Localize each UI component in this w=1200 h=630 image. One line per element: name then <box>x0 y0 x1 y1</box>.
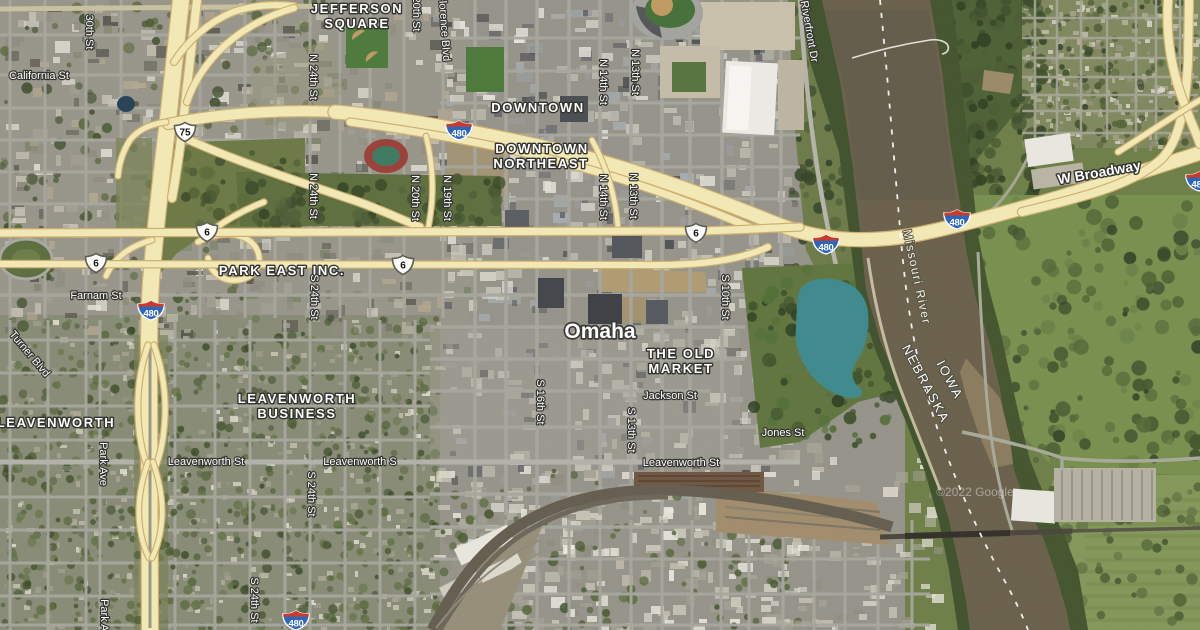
svg-text:Leavenworth St: Leavenworth St <box>643 457 719 469</box>
svg-text:N 14th St: N 14th St <box>597 59 609 105</box>
svg-text:N 24th St: N 24th St <box>307 173 319 219</box>
svg-text:Park Ave: Park Ave <box>98 599 110 630</box>
svg-text:480: 480 <box>950 218 965 229</box>
svg-text:Jackson St: Jackson St <box>643 390 697 402</box>
svg-text:480: 480 <box>289 619 304 630</box>
svg-text:S 13th St: S 13th St <box>625 407 637 452</box>
svg-text:S 24th St: S 24th St <box>248 577 260 622</box>
svg-text:LEAVENWORTH: LEAVENWORTH <box>238 391 356 406</box>
svg-text:N 14th St: N 14th St <box>597 174 609 220</box>
svg-text:DOWNTOWN: DOWNTOWN <box>495 141 588 156</box>
svg-text:6: 6 <box>93 259 99 270</box>
svg-text:PARK EAST INC.: PARK EAST INC. <box>219 263 345 278</box>
svg-text:S 16th St: S 16th St <box>534 379 546 424</box>
svg-text:Leavenworth S: Leavenworth S <box>323 456 396 468</box>
svg-text:6: 6 <box>400 261 406 272</box>
svg-text:S 10th St: S 10th St <box>719 274 731 319</box>
svg-text:NORTHEAST: NORTHEAST <box>493 156 588 171</box>
svg-text:Leavenworth St: Leavenworth St <box>168 456 244 468</box>
svg-text:480: 480 <box>1192 180 1200 191</box>
svg-text:S 24th St: S 24th St <box>308 274 320 319</box>
svg-text:SQUARE: SQUARE <box>324 16 389 31</box>
svg-text:Park Ave: Park Ave <box>97 442 109 486</box>
svg-text:480: 480 <box>819 243 834 254</box>
svg-text:75: 75 <box>179 128 191 139</box>
svg-text:LEAVENWORTH: LEAVENWORTH <box>0 415 115 430</box>
svg-text:©2022 Google: ©2022 Google <box>936 485 1014 499</box>
svg-text:MARKET: MARKET <box>648 361 713 376</box>
svg-text:THE OLD: THE OLD <box>647 346 715 361</box>
svg-text:California St: California St <box>9 70 69 82</box>
svg-text:N 19th St: N 19th St <box>441 175 453 221</box>
svg-text:N 13th St: N 13th St <box>627 173 639 219</box>
svg-text:JEFFERSON: JEFFERSON <box>311 1 403 16</box>
svg-text:480: 480 <box>144 309 159 320</box>
svg-text:Omaha: Omaha <box>564 320 636 343</box>
svg-text:DOWNTOWN: DOWNTOWN <box>491 100 584 115</box>
svg-text:Jones St: Jones St <box>762 427 805 439</box>
svg-text:6: 6 <box>204 228 210 239</box>
svg-text:6: 6 <box>693 229 699 240</box>
svg-text:480: 480 <box>452 129 467 140</box>
svg-text:BUSINESS: BUSINESS <box>257 406 336 421</box>
svg-text:30th St: 30th St <box>83 15 95 50</box>
svg-text:N 13th St: N 13th St <box>629 49 641 95</box>
svg-text:Farnam St: Farnam St <box>70 290 121 302</box>
svg-text:N 20th St: N 20th St <box>409 175 421 221</box>
svg-text:20th St: 20th St <box>410 0 422 31</box>
svg-text:S 24th St: S 24th St <box>305 471 317 516</box>
svg-text:N 24th St: N 24th St <box>307 54 319 100</box>
